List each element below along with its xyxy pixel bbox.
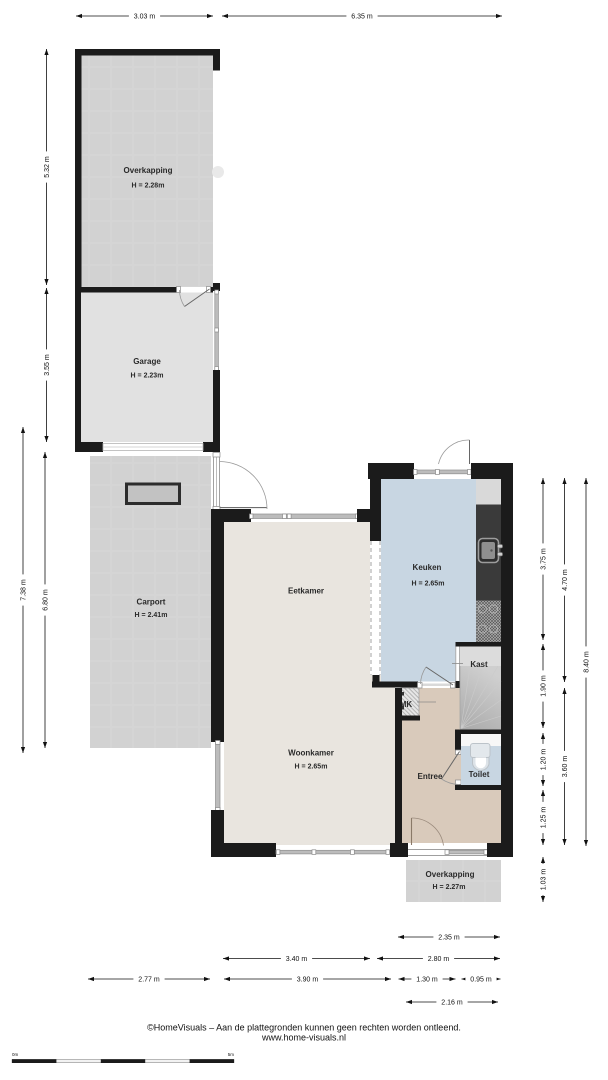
svg-text:1.20 m: 1.20 m: [541, 749, 548, 771]
svg-text:Overkapping: Overkapping: [426, 870, 475, 879]
svg-text:2.77 m: 2.77 m: [138, 977, 160, 984]
svg-text:H = 2.65m: H = 2.65m: [295, 764, 328, 771]
svg-text:Overkapping: Overkapping: [124, 166, 173, 175]
svg-text:1.90 m: 1.90 m: [541, 675, 548, 697]
svg-text:5.32 m: 5.32 m: [44, 156, 51, 178]
svg-text:3.75 m: 3.75 m: [541, 548, 548, 570]
svg-text:6.35 m: 6.35 m: [351, 14, 373, 21]
svg-text:1.25 m: 1.25 m: [541, 807, 548, 829]
svg-text:Keuken: Keuken: [413, 563, 442, 572]
svg-text:www.home-visuals.nl: www.home-visuals.nl: [261, 1033, 346, 1043]
svg-text:8.40 m: 8.40 m: [584, 651, 591, 673]
svg-text:Garage: Garage: [133, 357, 161, 366]
svg-text:H = 2.65m: H = 2.65m: [412, 581, 445, 588]
svg-text:3.90 m: 3.90 m: [297, 977, 319, 984]
svg-text:2.16 m: 2.16 m: [441, 1000, 463, 1007]
svg-text:6.80 m: 6.80 m: [43, 589, 50, 611]
svg-text:Kast: Kast: [470, 660, 488, 669]
svg-text:2.80 m: 2.80 m: [428, 956, 450, 963]
svg-text:H = 2.41m: H = 2.41m: [135, 612, 168, 619]
svg-text:0.95 m: 0.95 m: [470, 977, 492, 984]
svg-text:3.60 m: 3.60 m: [562, 756, 569, 778]
svg-text:2.35 m: 2.35 m: [438, 935, 460, 942]
svg-text:Eetkamer: Eetkamer: [288, 587, 324, 596]
svg-text:3.55 m: 3.55 m: [44, 354, 51, 376]
svg-text:Entree: Entree: [418, 772, 443, 781]
svg-text:0m: 0m: [12, 1052, 19, 1057]
svg-text:©HomeVisuals – Aan de plattegr: ©HomeVisuals – Aan de plattegronden kunn…: [147, 1023, 461, 1033]
svg-text:1.30 m: 1.30 m: [416, 977, 438, 984]
svg-text:5m: 5m: [228, 1052, 235, 1057]
svg-text:H = 2.23m: H = 2.23m: [131, 373, 164, 380]
svg-text:Carport: Carport: [137, 598, 166, 607]
svg-text:H = 2.28m: H = 2.28m: [132, 183, 165, 190]
svg-text:3.40 m: 3.40 m: [286, 956, 308, 963]
svg-text:1.03 m: 1.03 m: [541, 869, 548, 891]
svg-text:Woonkamer: Woonkamer: [288, 749, 334, 758]
svg-text:H = 2.27m: H = 2.27m: [433, 884, 466, 891]
svg-text:3.03 m: 3.03 m: [134, 14, 156, 21]
svg-text:4.70 m: 4.70 m: [562, 569, 569, 591]
svg-text:7.38 m: 7.38 m: [21, 579, 28, 601]
svg-text:Toilet: Toilet: [469, 770, 490, 779]
